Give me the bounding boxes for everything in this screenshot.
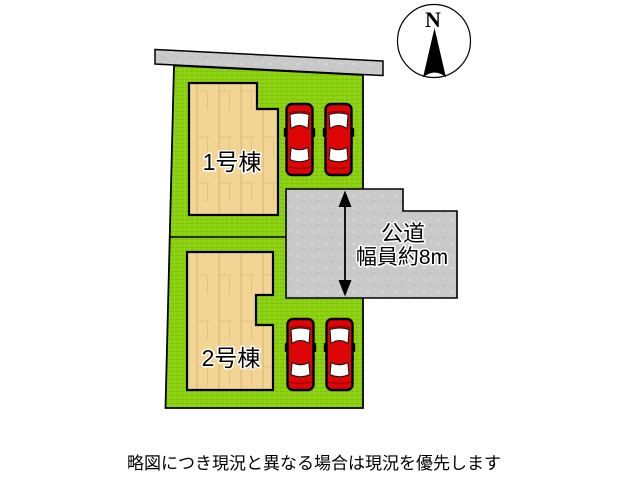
building-2-label: 2号棟 bbox=[202, 345, 261, 371]
road-label-line1: 公道 bbox=[381, 221, 425, 246]
site-plan-canvas: 1号棟 2号棟 公道 幅員約8m N 略図につき現況と異なる場合は現況を優先しま… bbox=[0, 0, 640, 480]
road-label-line2: 幅員約8m bbox=[356, 246, 448, 269]
car-icon bbox=[323, 104, 354, 175]
north-compass-icon: N bbox=[398, 5, 471, 78]
compass-n-label: N bbox=[425, 7, 441, 32]
public-road bbox=[286, 189, 457, 298]
building-1-label: 1号棟 bbox=[203, 149, 262, 175]
car-icon bbox=[324, 319, 355, 390]
car-icon bbox=[285, 319, 316, 390]
site-plan-page: 1号棟 2号棟 公道 幅員約8m N 略図につき現況と異なる場合は現況を優先しま… bbox=[0, 0, 640, 480]
car-icon bbox=[284, 104, 315, 175]
disclaimer-caption: 略図につき現況と異なる場合は現況を優先します bbox=[127, 454, 501, 473]
